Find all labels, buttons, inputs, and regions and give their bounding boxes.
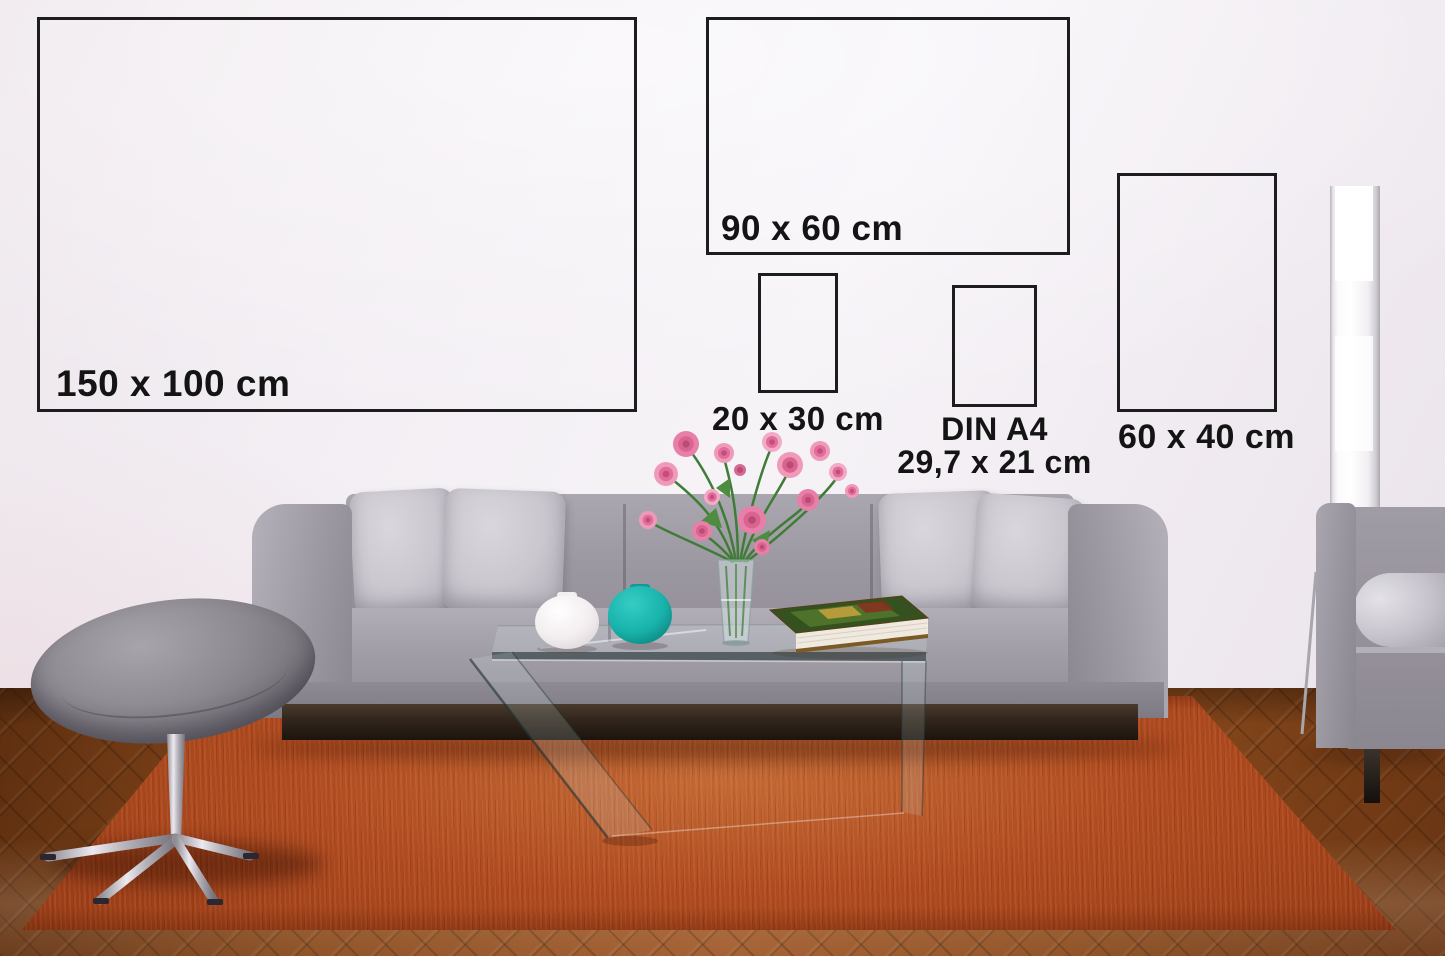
- size-label-din-a4-name: DIN A4: [897, 413, 1092, 446]
- size-box-60x40: 60 x 40 cm: [1117, 173, 1277, 412]
- size-label-20x30: 20 x 30 cm: [712, 402, 884, 435]
- size-box-150x100: 150 x 100 cm: [37, 17, 637, 412]
- size-box-20x30: 20 x 30 cm: [758, 273, 838, 393]
- size-label-60x40: 60 x 40 cm: [1118, 420, 1295, 454]
- size-box-90x60: 90 x 60 cm: [706, 17, 1070, 255]
- size-label-90x60: 90 x 60 cm: [721, 211, 903, 246]
- living-room-scene: 150 x 100 cm 90 x 60 cm 20 x 30 cm DIN A…: [0, 0, 1445, 956]
- size-label-din-a4-dims: 29,7 x 21 cm: [897, 446, 1092, 479]
- size-overlay: 150 x 100 cm 90 x 60 cm 20 x 30 cm DIN A…: [0, 0, 1445, 956]
- size-box-din-a4: DIN A4 29,7 x 21 cm: [952, 285, 1037, 407]
- size-label-din-a4: DIN A4 29,7 x 21 cm: [897, 413, 1092, 478]
- size-label-150x100: 150 x 100 cm: [56, 365, 290, 402]
